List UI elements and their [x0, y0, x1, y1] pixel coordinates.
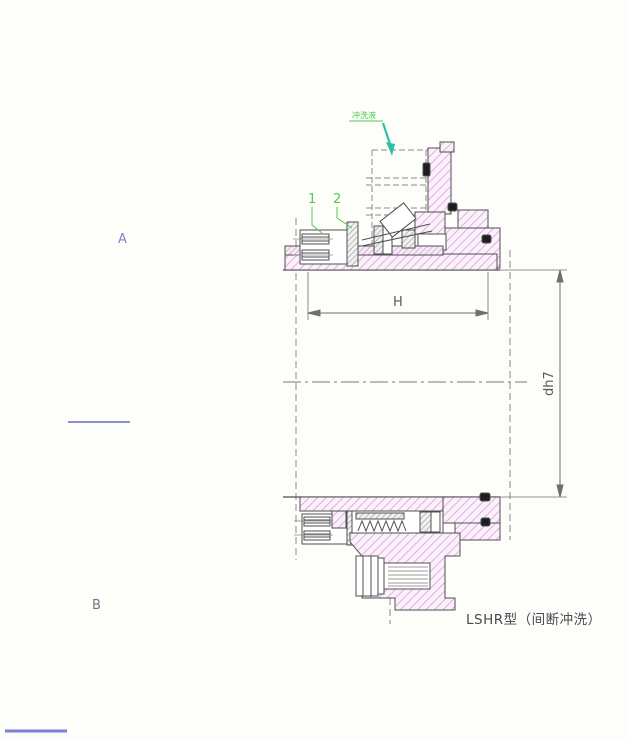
part-label-2: 2: [333, 192, 341, 207]
o-ring: [448, 203, 457, 211]
o-ring: [482, 235, 491, 243]
o-ring: [480, 493, 490, 501]
gland-flange: [443, 497, 500, 523]
mechanical-seal-section-drawing: H dh7 1 2 冲洗液 A B LSHR型（间断冲洗）: [0, 0, 630, 739]
bolt-head: [356, 556, 378, 596]
section-label-b: B: [92, 598, 101, 613]
flush-arrow-head: [386, 142, 395, 156]
set-screw: [304, 531, 330, 540]
section-label-a: A: [118, 232, 127, 247]
spring-block: [402, 230, 415, 248]
gland-column: [428, 148, 451, 214]
part-label-1: 1: [308, 192, 316, 207]
arrowhead: [557, 270, 563, 282]
flush-label: 冲洗液: [352, 110, 376, 120]
bolt-washer: [378, 558, 384, 594]
shaft: [283, 270, 500, 497]
gland-flange-step: [455, 523, 500, 540]
o-ring: [481, 518, 490, 526]
mating-ring: [431, 512, 440, 532]
set-screw: [304, 517, 330, 526]
flush-arrow-line: [383, 123, 390, 144]
gland-neck: [415, 212, 445, 234]
arrowhead: [476, 310, 488, 316]
lower-seal-assembly: [294, 493, 500, 610]
leader-line-1: [312, 207, 322, 233]
arrowhead: [308, 310, 320, 316]
gland-column-step: [440, 142, 454, 152]
seal-face-ring: [420, 512, 431, 532]
drawing-title: LSHR型（间断冲洗）: [466, 612, 602, 628]
dimension-label-dh7: dh7: [542, 371, 557, 396]
gland-flange-step: [458, 210, 488, 228]
spring-seat-strip: [356, 513, 404, 519]
upper-seal-assembly: [285, 142, 500, 270]
seal-face-ring: [374, 226, 383, 254]
dimension-label-H: H: [393, 295, 403, 310]
dimension-H: H: [308, 272, 488, 320]
flush-port-callout: 冲洗液: [349, 110, 395, 156]
part-callouts: 1 2: [308, 192, 352, 233]
cad-drawing-canvas: H dh7 1 2 冲洗液 A B LSHR型（间断冲洗）: [0, 0, 630, 739]
gland-notch: [332, 511, 346, 528]
arrowhead: [557, 485, 563, 497]
collar-ring: [347, 222, 358, 266]
port-o-ring: [423, 163, 430, 176]
